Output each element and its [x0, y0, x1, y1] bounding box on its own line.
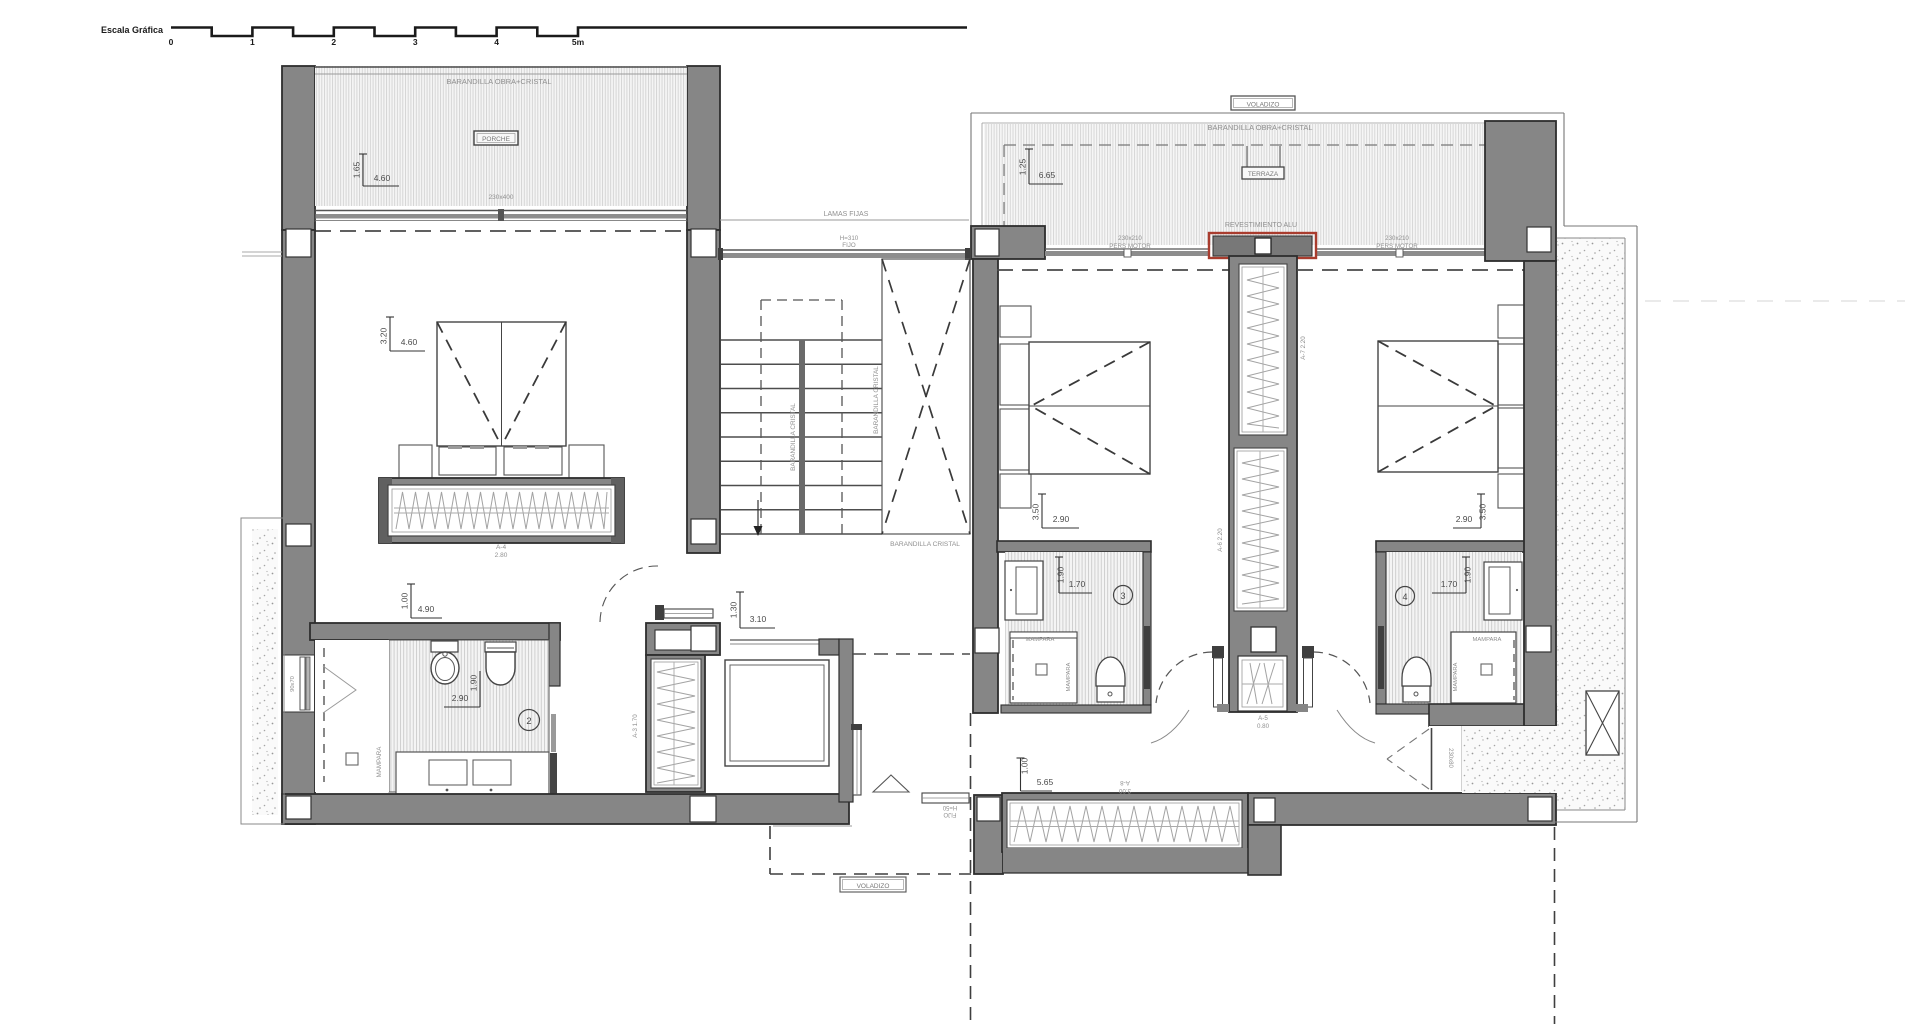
svg-text:A-6 2.20: A-6 2.20	[1217, 528, 1224, 552]
svg-text:2: 2	[526, 716, 531, 727]
svg-text:Escala Gráfica: Escala Gráfica	[101, 25, 164, 35]
svg-text:1.30: 1.30	[729, 601, 739, 618]
svg-text:LAMAS FIJAS: LAMAS FIJAS	[824, 211, 869, 218]
svg-text:PORCHE: PORCHE	[482, 136, 510, 143]
svg-text:230x80: 230x80	[1447, 748, 1453, 768]
svg-text:5m: 5m	[572, 37, 585, 47]
svg-text:3.50: 3.50	[1031, 503, 1041, 520]
svg-text:2.90: 2.90	[452, 693, 469, 703]
svg-text:FIJO: FIJO	[842, 242, 856, 249]
svg-text:A-8: A-8	[1120, 779, 1130, 786]
svg-text:3.00: 3.00	[1118, 787, 1131, 794]
svg-text:4.60: 4.60	[374, 173, 391, 183]
svg-text:3.20: 3.20	[379, 327, 389, 344]
svg-text:MAMPARA: MAMPARA	[376, 746, 383, 778]
svg-text:BARANDILLA OBRA+CRISTAL: BARANDILLA OBRA+CRISTAL	[1207, 123, 1312, 132]
svg-text:MAMPARA: MAMPARA	[1473, 637, 1502, 643]
svg-text:4: 4	[494, 37, 499, 47]
svg-text:A-3 1.70: A-3 1.70	[632, 714, 639, 738]
svg-text:1.00: 1.00	[1020, 757, 1030, 774]
svg-text:2.90: 2.90	[1456, 514, 1473, 524]
svg-text:1.70: 1.70	[1069, 579, 1086, 589]
svg-text:230x210: 230x210	[1118, 235, 1142, 242]
svg-text:A-4: A-4	[496, 544, 507, 551]
svg-text:1.90: 1.90	[1463, 566, 1473, 583]
svg-text:H=310: H=310	[840, 235, 859, 242]
svg-text:4.90: 4.90	[418, 604, 435, 614]
svg-text:3: 3	[1120, 591, 1125, 601]
svg-text:BARANDILLA CRISTAL: BARANDILLA CRISTAL	[890, 541, 960, 548]
svg-text:1.90: 1.90	[469, 674, 479, 691]
svg-text:VOLADIZO: VOLADIZO	[1247, 102, 1280, 109]
svg-text:PERS MOTOR: PERS MOTOR	[1376, 243, 1418, 250]
svg-text:6.65: 6.65	[1039, 170, 1056, 180]
svg-text:3: 3	[413, 37, 418, 47]
svg-text:MAMPARA: MAMPARA	[1026, 637, 1055, 643]
svg-text:MAMPARA: MAMPARA	[1066, 662, 1072, 691]
svg-text:A-5: A-5	[1258, 715, 1268, 722]
svg-text:4: 4	[1402, 592, 1407, 602]
svg-text:3.10: 3.10	[750, 614, 767, 624]
svg-text:BARANDILLA CRISTAL: BARANDILLA CRISTAL	[873, 366, 880, 434]
svg-text:1.70: 1.70	[1441, 579, 1458, 589]
svg-text:0.80: 0.80	[1257, 723, 1270, 730]
svg-text:TERRAZA: TERRAZA	[1248, 171, 1279, 178]
svg-text:4.60: 4.60	[401, 337, 418, 347]
svg-text:0: 0	[169, 37, 174, 47]
svg-text:1.90: 1.90	[1056, 566, 1066, 583]
svg-text:FIJO: FIJO	[943, 811, 956, 817]
svg-text:3.50: 3.50	[1478, 503, 1488, 520]
svg-text:PERS MOTOR: PERS MOTOR	[1109, 243, 1151, 250]
svg-text:VOLADIZO: VOLADIZO	[857, 883, 890, 890]
svg-text:A-7 2.20: A-7 2.20	[1300, 336, 1307, 360]
svg-text:2.90: 2.90	[1053, 514, 1070, 524]
svg-text:H=50: H=50	[942, 804, 957, 810]
svg-text:1: 1	[250, 37, 255, 47]
svg-text:5.65: 5.65	[1037, 777, 1054, 787]
svg-text:90x70: 90x70	[290, 676, 296, 692]
svg-text:MAMPARA: MAMPARA	[1453, 662, 1459, 691]
svg-text:2.80: 2.80	[495, 552, 508, 559]
svg-text:1.65: 1.65	[352, 161, 362, 178]
svg-text:1.25: 1.25	[1018, 158, 1028, 175]
svg-text:BARANDILLA CRISTAL: BARANDILLA CRISTAL	[790, 403, 797, 471]
svg-text:2: 2	[331, 37, 336, 47]
svg-text:REVESTIMIENTO ALU: REVESTIMIENTO ALU	[1225, 222, 1297, 229]
svg-text:1.00: 1.00	[400, 592, 410, 609]
svg-text:230x210: 230x210	[1385, 235, 1409, 242]
svg-text:230x400: 230x400	[489, 194, 514, 201]
svg-text:BARANDILLA OBRA+CRISTAL: BARANDILLA OBRA+CRISTAL	[446, 77, 551, 86]
